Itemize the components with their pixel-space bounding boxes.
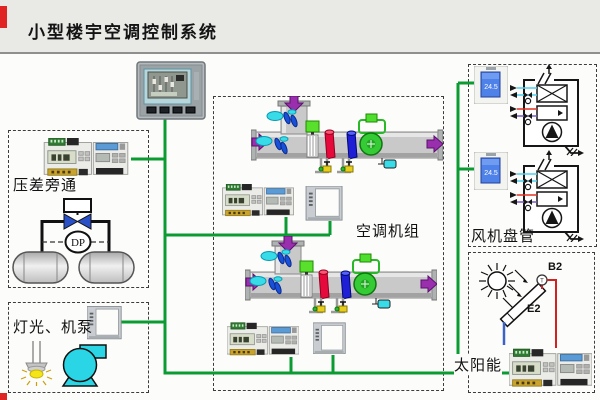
solar-collector-tag: E2	[527, 303, 540, 315]
sun-icon	[488, 272, 506, 290]
solar-hot-pipe	[547, 280, 556, 348]
solar-sensor-tag: B2	[548, 261, 562, 273]
din-controller-ahu-1	[222, 184, 293, 216]
pump-icon	[63, 345, 106, 386]
hmi-touch-panel	[137, 62, 205, 119]
pipe-left	[42, 222, 64, 254]
ahu-schematic-2	[245, 236, 437, 312]
bypass-valve-icon	[64, 214, 78, 229]
lamp-icon	[21, 341, 52, 386]
label-ahu: 空调机组	[356, 220, 420, 241]
label-fan-coil: 风机盘管	[471, 225, 535, 246]
fan-coil-schematic-1	[510, 64, 584, 156]
pipe-right	[91, 222, 109, 254]
io-module-ahu-1	[306, 186, 342, 220]
thermostat-2-reading: 24.5	[484, 170, 498, 177]
bypass-piping: DP	[13, 199, 134, 283]
thermostat-1-reading: 24.5	[484, 84, 498, 91]
diagram-page: 小型楼宇空调控制系统	[0, 0, 600, 400]
label-solar: 太阳能	[454, 354, 502, 375]
label-pressure-bypass: 压差旁通	[13, 174, 77, 195]
valve-actuator	[64, 199, 91, 212]
header-pipe-right	[79, 252, 134, 283]
solar-diagram: T B2 E2	[479, 261, 562, 348]
header-pipe-left	[13, 252, 68, 283]
diagram-graphics: 24.5 24.5 DP	[0, 0, 600, 400]
ahu-schematic-1	[251, 96, 443, 172]
label-lighting-pumps: 灯光、机泵	[13, 316, 93, 337]
temperature-sensor-symbol: T	[540, 279, 544, 285]
dp-sensor-tag: DP	[71, 237, 85, 249]
din-controller-ahu-2	[227, 323, 299, 355]
din-controller-pressure-bypass	[44, 138, 128, 175]
io-module-ahu-2	[313, 323, 345, 354]
din-controller-solar	[509, 349, 592, 386]
